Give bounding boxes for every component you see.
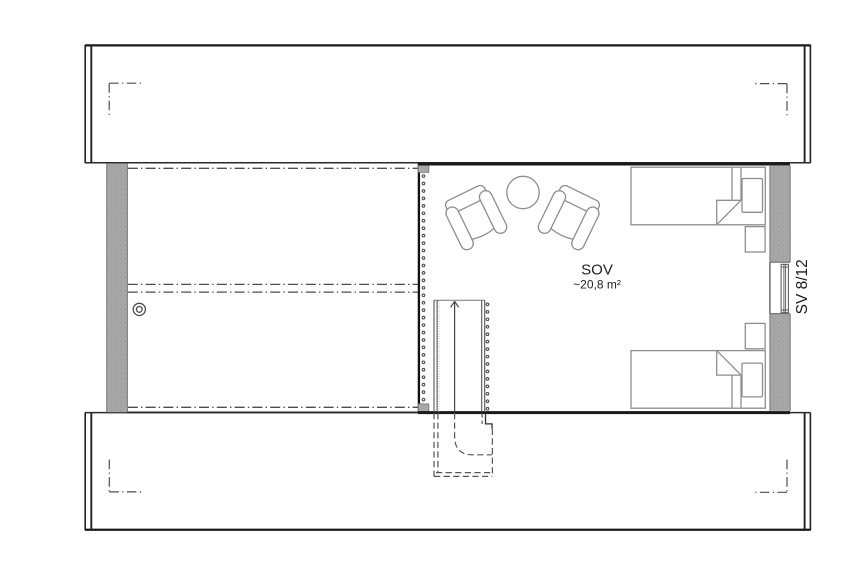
svg-text:~20,8 m²: ~20,8 m² bbox=[573, 278, 621, 292]
svg-text:SV 8/12: SV 8/12 bbox=[794, 259, 811, 314]
svg-text:SOV: SOV bbox=[581, 262, 613, 279]
